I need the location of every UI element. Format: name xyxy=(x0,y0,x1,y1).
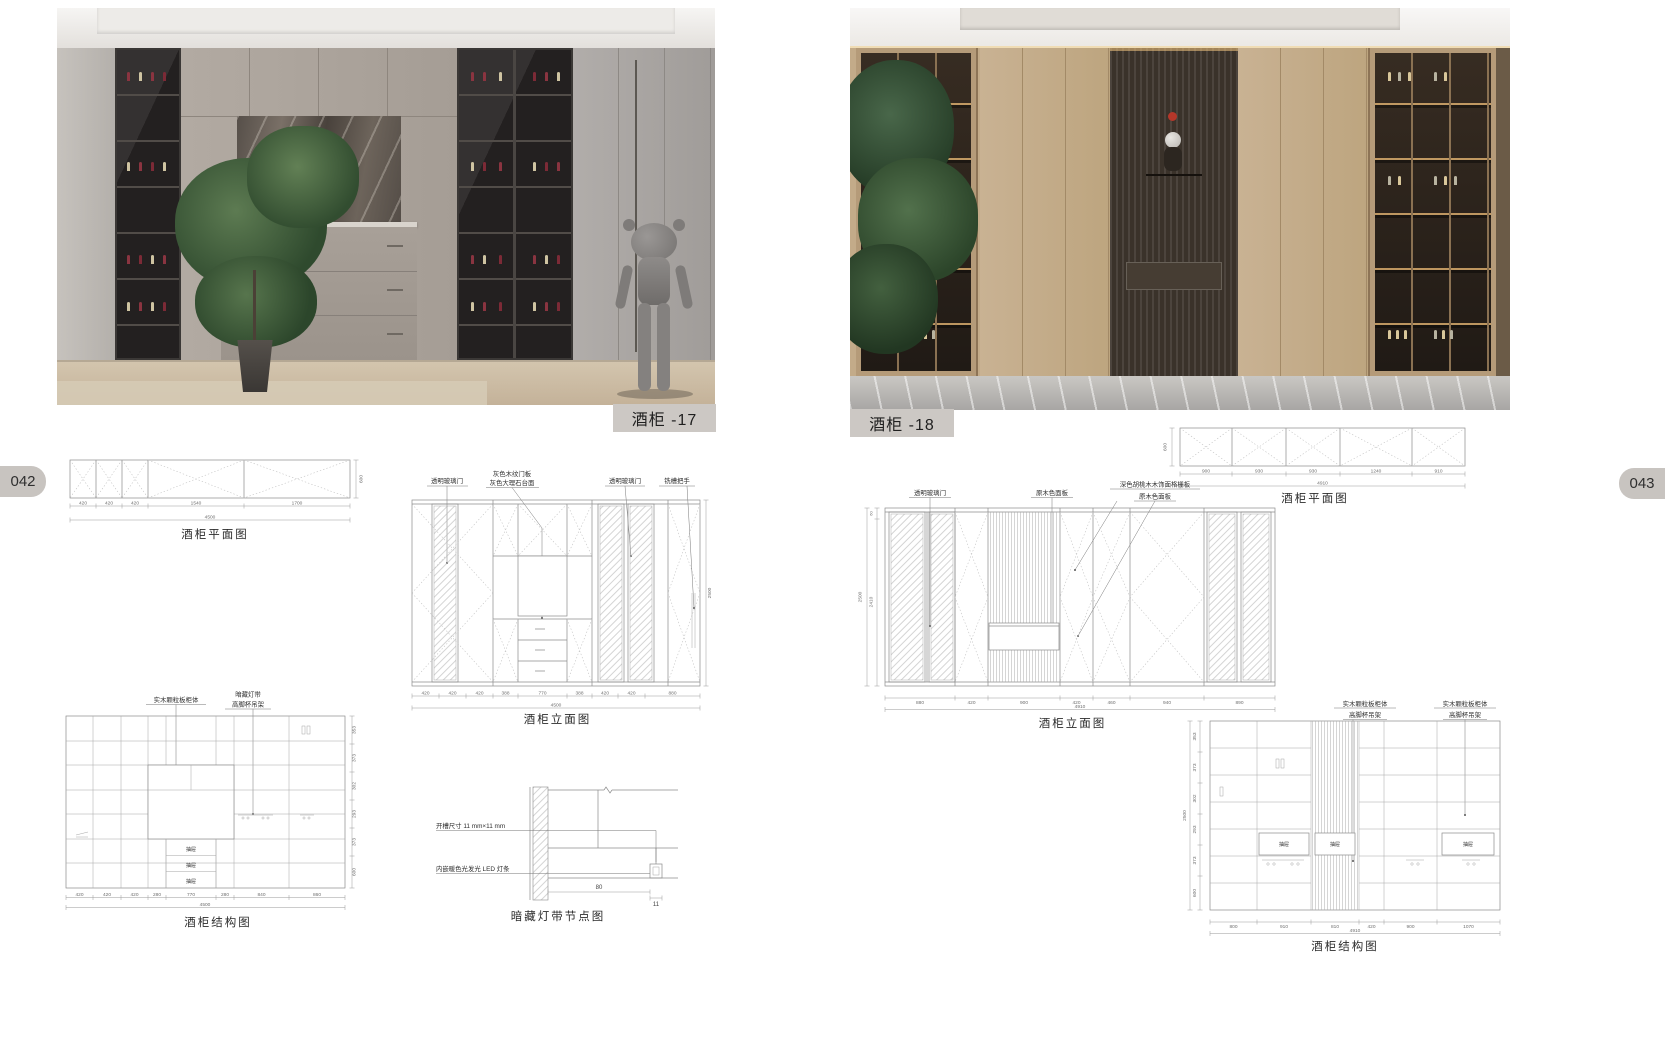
center-drawer xyxy=(1126,262,1222,290)
dim-label: 1240 xyxy=(1371,469,1382,475)
dim-label: 420 xyxy=(131,501,139,507)
caption-text: 酒柜 -18 xyxy=(869,411,935,435)
ceiling xyxy=(850,8,1510,48)
dim-label: 810 xyxy=(1331,924,1339,930)
dim-height: 2500 xyxy=(858,591,864,602)
dim-label: 302 xyxy=(1192,794,1198,802)
dim-total: 4500 xyxy=(205,515,216,521)
page-number-043: 043 xyxy=(1619,468,1665,499)
dim-label: 373 xyxy=(1192,763,1198,771)
structure-drawing-18: 实木颗粒板柜体 高脚杯吊架 实木颗粒板柜体 高脚杯吊架 抽屉 抽屉 抽屉 353… xyxy=(1180,695,1510,940)
oak-doors xyxy=(980,48,1110,376)
wine-bottles xyxy=(127,162,130,171)
dim-total: 4500 xyxy=(200,902,211,908)
dim-label: 420 xyxy=(421,691,429,697)
dim-label: 302 xyxy=(352,782,358,790)
lit-shelves xyxy=(1375,53,1491,371)
dim-label: 940 xyxy=(1163,700,1171,706)
elevation-linework xyxy=(885,508,1275,686)
figure-arm xyxy=(615,264,634,309)
dim-total: 4910 xyxy=(1075,704,1086,710)
dim-label: 420 xyxy=(75,892,83,898)
dim-label: 420 xyxy=(967,700,975,706)
dim-label: 420 xyxy=(103,892,111,898)
annotation-label: 暗藏灯带 xyxy=(235,690,261,699)
node-dimensions: 80 11 xyxy=(548,885,662,908)
oak-doors xyxy=(1238,48,1368,376)
dim-label: 930 xyxy=(1255,469,1263,475)
astronaut-body xyxy=(1164,147,1182,171)
dim-total: 4910 xyxy=(1350,928,1361,934)
annotation-label: 高脚杯吊架 xyxy=(1349,710,1382,719)
dim-total: 4500 xyxy=(551,703,562,709)
dim-label: 420 xyxy=(130,892,138,898)
annotation-label: 透明玻璃门 xyxy=(914,488,946,497)
dim-label: 80 xyxy=(596,885,603,891)
annotation-label: 灰色大理石台面 xyxy=(490,478,535,487)
figure-body xyxy=(638,257,670,305)
wine-shelves xyxy=(117,50,179,358)
wine-bottles xyxy=(471,72,474,81)
dim-label: 420 xyxy=(79,501,87,507)
annotation-label: 高脚杯吊架 xyxy=(232,700,265,709)
dim-label: 770 xyxy=(538,691,546,697)
annotation-label: 开槽尺寸 11 mm×11 mm xyxy=(436,821,505,830)
annotation-label: 内嵌暖色光发光 LED 灯条 xyxy=(436,864,510,873)
dim-label: 1070 xyxy=(1463,924,1474,930)
ceiling xyxy=(57,8,715,48)
dim-label: 280 xyxy=(221,892,229,898)
dim-label: 880 xyxy=(668,691,676,697)
dim-label: 910 xyxy=(1434,469,1442,475)
plan-title-17: 酒柜平面图 xyxy=(60,526,370,542)
caption-text: 酒柜 -17 xyxy=(632,406,698,430)
display-bottles xyxy=(1388,330,1391,339)
elevation-drawing-17: 透明玻璃门 灰色木纹门板 灰色大理石台面 透明玻璃门 铣槽把手 420 420 … xyxy=(400,468,715,718)
drawer-handle xyxy=(387,333,403,335)
structure-title-17: 酒柜结构图 xyxy=(58,914,378,930)
structure-linework xyxy=(1210,721,1500,910)
node-detail-drawing: 开槽尺寸 11 mm×11 mm 内嵌暖色光发光 LED 灯条 80 11 xyxy=(428,772,688,907)
dim-label: 388 xyxy=(575,691,583,697)
dim-depth: 600 xyxy=(1163,443,1169,451)
annotation-label: 铣槽把手 xyxy=(664,476,690,485)
figure-ear xyxy=(623,219,635,231)
dim-label: 1700 xyxy=(292,501,303,507)
dim-label: 420 xyxy=(105,501,113,507)
figure-leg xyxy=(657,303,670,391)
plant-foliage xyxy=(247,126,359,228)
dim-label: 353 xyxy=(352,726,358,734)
dim-height: 2500 xyxy=(1182,810,1188,821)
figure-leg xyxy=(638,303,651,391)
dim-label: 770 xyxy=(187,892,195,898)
dim-label: 1540 xyxy=(191,501,202,507)
photo-caption-17: 酒柜 -17 xyxy=(613,404,716,432)
photo-cabinet-17 xyxy=(57,8,715,405)
glass-mullion xyxy=(513,50,516,358)
dim-label: 293 xyxy=(352,810,358,818)
figure-shadow xyxy=(617,389,693,399)
fluted-walnut-panel xyxy=(1110,48,1238,376)
plant-foliage xyxy=(195,256,317,348)
dim-label: 373 xyxy=(352,754,358,762)
dim-label: 900 xyxy=(1020,700,1028,706)
drawer-handle xyxy=(387,245,403,247)
display-bottles xyxy=(1388,176,1391,185)
drawer-label: 抽屉 xyxy=(1463,841,1473,848)
annotation-label: 深色胡桃木木饰面格栅板 xyxy=(1120,480,1191,489)
node-detail-title: 暗藏灯带节点图 xyxy=(428,908,688,924)
dim-label: 373 xyxy=(1192,856,1198,864)
dim-label: 880 xyxy=(916,700,924,706)
upper-cabinet-seam xyxy=(387,48,388,116)
dim-label: 420 xyxy=(475,691,483,697)
drawer-label: 抽屉 xyxy=(1330,841,1340,848)
astronaut-head xyxy=(1165,132,1181,148)
structure-title-18: 酒柜结构图 xyxy=(1180,938,1510,954)
plant-trunk xyxy=(253,270,256,342)
plan-dimensions: 420 420 420 1540 1700 4500 600 xyxy=(70,460,365,523)
wine-bottles xyxy=(127,72,130,81)
panel-glow xyxy=(1110,48,1238,51)
dim-label: 840 xyxy=(257,892,265,898)
annotation-label: 高脚杯吊架 xyxy=(1449,710,1482,719)
annotation-label: 灰色木纹门板 xyxy=(493,469,532,478)
wine-display-column-left xyxy=(115,48,181,360)
figure-arm xyxy=(675,264,694,309)
structure-drawing-17: 实木颗粒板柜体 暗藏灯带 高脚杯吊架 抽屉 抽屉 抽屉 420 420 420 … xyxy=(58,688,378,913)
kaws-figure xyxy=(611,223,697,395)
wine-bottles xyxy=(127,255,130,264)
elevation-drawing-18: 透明玻璃门 原木色面板 深色胡桃木木饰面格栅板 原木色面板 2500 60 24… xyxy=(855,478,1290,723)
dim-label: 600 xyxy=(1192,889,1198,897)
dim-label: 420 xyxy=(627,691,635,697)
dim-label: 600 xyxy=(352,868,358,876)
wine-bottles xyxy=(471,162,474,171)
annotation-label: 实木颗粒板柜体 xyxy=(154,695,199,704)
red-balloon xyxy=(1168,112,1177,121)
rug xyxy=(57,381,487,405)
dim-label: 60 xyxy=(869,511,874,516)
dim-label: 460 xyxy=(1107,700,1115,706)
figure-ear xyxy=(673,219,685,231)
dim-label: 860 xyxy=(313,892,321,898)
upper-cabinet-seam xyxy=(249,48,250,116)
drawer-label: 抽屉 xyxy=(1279,841,1289,848)
plan-grid xyxy=(70,460,350,498)
dim-height: 2500 xyxy=(707,587,713,598)
wine-display-column-right xyxy=(457,48,573,360)
side-panel xyxy=(57,48,115,360)
annotation-label: 原木色面板 xyxy=(1036,488,1069,497)
wall-edge xyxy=(1496,48,1510,376)
drawer-label: 抽屉 xyxy=(186,846,196,853)
annotation-label: 实木颗粒板柜体 xyxy=(1343,699,1388,708)
wine-bottles xyxy=(471,255,474,264)
page-number-042: 042 xyxy=(0,466,46,497)
wine-bottles xyxy=(127,302,130,311)
annotation-label: 原木色面板 xyxy=(1139,492,1172,501)
dim-label: 420 xyxy=(601,691,609,697)
dim-label: 930 xyxy=(1309,469,1317,475)
plan-drawing-17: 420 420 420 1540 1700 4500 600 xyxy=(60,448,370,538)
dim-total: 4910 xyxy=(1317,481,1328,487)
elevation-title-17: 酒柜立面图 xyxy=(400,711,715,727)
drawer-handle xyxy=(387,289,403,291)
dim-label: 2410 xyxy=(869,596,875,607)
annotation-label: 透明玻璃门 xyxy=(431,476,463,485)
dim-label: 353 xyxy=(1192,732,1198,740)
glass-display-right xyxy=(1368,48,1496,376)
annotation-label: 实木颗粒板柜体 xyxy=(1443,699,1488,708)
photo-cabinet-18 xyxy=(850,8,1510,410)
marble-floor xyxy=(850,376,1510,410)
dim-label: 280 xyxy=(153,892,161,898)
dim-label: 420 xyxy=(1367,924,1375,930)
dim-label: 900 xyxy=(1406,924,1414,930)
dim-label: 293 xyxy=(1192,825,1198,833)
wine-bottles xyxy=(471,302,474,311)
drawer-label: 抽屉 xyxy=(186,878,196,885)
photo-caption-18: 酒柜 -18 xyxy=(850,409,954,437)
dim-label: 900 xyxy=(1202,469,1210,475)
dim-depth: 600 xyxy=(359,475,365,483)
page-number-text: 042 xyxy=(10,473,35,490)
wall-hatch xyxy=(533,787,548,900)
plan-grid xyxy=(1180,428,1465,466)
annotation-label: 透明玻璃门 xyxy=(609,476,641,485)
page-number-text: 043 xyxy=(1629,475,1654,492)
ceiling-recess xyxy=(960,8,1400,30)
structure-linework xyxy=(66,716,345,888)
upper-cabinet-seam xyxy=(318,48,319,116)
dim-label: 388 xyxy=(501,691,509,697)
display-bottles xyxy=(1388,72,1391,81)
structure-drawer-labels: 抽屉 抽屉 抽屉 xyxy=(186,846,196,885)
ceiling-recess xyxy=(97,8,675,34)
figure-head xyxy=(631,223,677,261)
elevation-linework xyxy=(412,500,700,686)
dim-label: 420 xyxy=(448,691,456,697)
drawer-label: 抽屉 xyxy=(186,862,196,869)
dim-label: 800 xyxy=(1229,924,1237,930)
dim-label: 910 xyxy=(1280,924,1288,930)
display-shelf xyxy=(1146,174,1202,176)
dim-label: 373 xyxy=(352,838,358,846)
